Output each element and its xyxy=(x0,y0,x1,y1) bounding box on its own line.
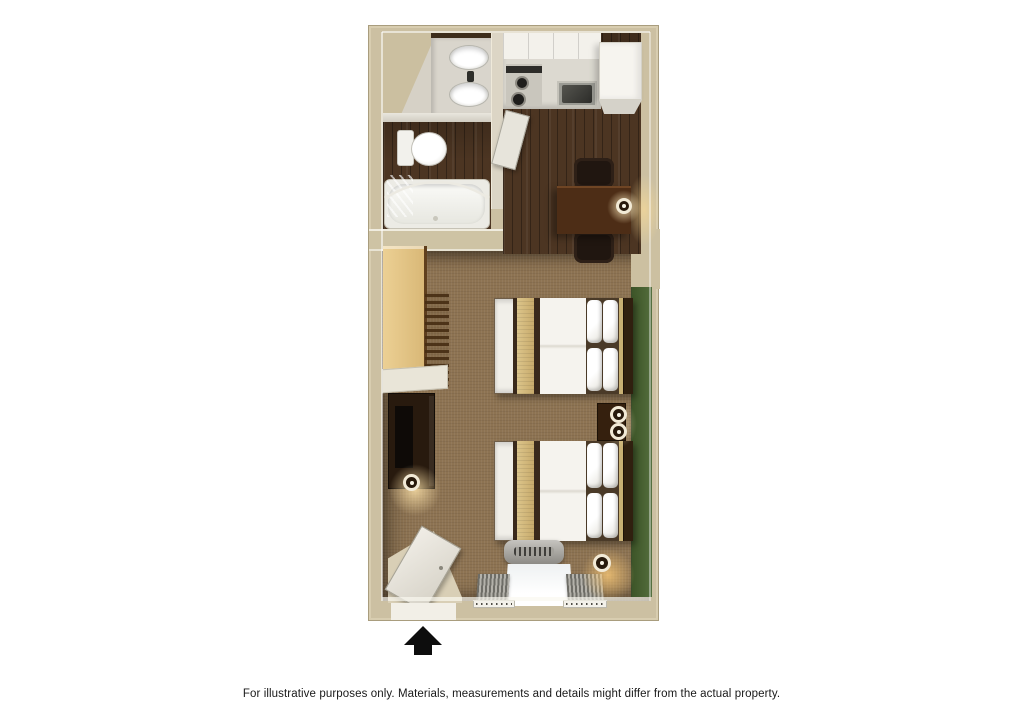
table-lamp xyxy=(616,198,632,214)
bed-pillows xyxy=(586,298,619,394)
wall-edge xyxy=(381,32,383,601)
wall-edge xyxy=(382,597,650,601)
bathroom-kitchen-wall xyxy=(491,33,503,209)
corner-lamp xyxy=(593,554,611,572)
wall-edge xyxy=(382,31,650,33)
headboard xyxy=(623,441,633,541)
burner-icon xyxy=(511,92,526,107)
wall-edge xyxy=(649,32,651,601)
dining-chair xyxy=(574,158,614,188)
closet-lower-shelf xyxy=(382,365,448,394)
sink-basin-1 xyxy=(449,45,489,70)
bed-1 xyxy=(494,298,633,394)
dining-chair xyxy=(574,232,614,263)
bed-duvet xyxy=(540,441,586,541)
curtain-rod-left xyxy=(473,600,515,608)
shower-rod-icon xyxy=(383,161,491,203)
door-threshold xyxy=(391,603,456,620)
disclaimer-caption: For illustrative purposes only. Material… xyxy=(0,688,1023,700)
headboard xyxy=(623,298,633,394)
range-control-strip xyxy=(506,66,542,73)
bed-tan-runner xyxy=(517,298,534,394)
sink-basin-2 xyxy=(449,82,489,107)
hvac-vent xyxy=(514,547,554,556)
bathroom xyxy=(383,33,491,231)
burner-icon xyxy=(515,76,529,90)
tv xyxy=(395,406,413,468)
refrigerator xyxy=(599,42,642,100)
faucet-icon xyxy=(467,71,474,82)
floor-lamp xyxy=(403,474,420,491)
bed-tan-runner xyxy=(517,441,534,541)
entrance-arrow-stem xyxy=(414,644,432,655)
bed-2 xyxy=(494,441,633,541)
entrance-arrow-icon xyxy=(404,626,442,645)
kitchen-sink-basin xyxy=(562,85,592,103)
nightstand-lamp xyxy=(610,423,627,440)
floorplan-render xyxy=(368,25,659,621)
nightstand-lamp xyxy=(610,406,627,423)
door-knob-icon xyxy=(439,566,443,570)
bed-pillows xyxy=(586,441,619,541)
tub-drain xyxy=(433,216,438,221)
bed-duvet xyxy=(540,298,586,394)
kitchen-upper-cabinets xyxy=(503,33,601,61)
